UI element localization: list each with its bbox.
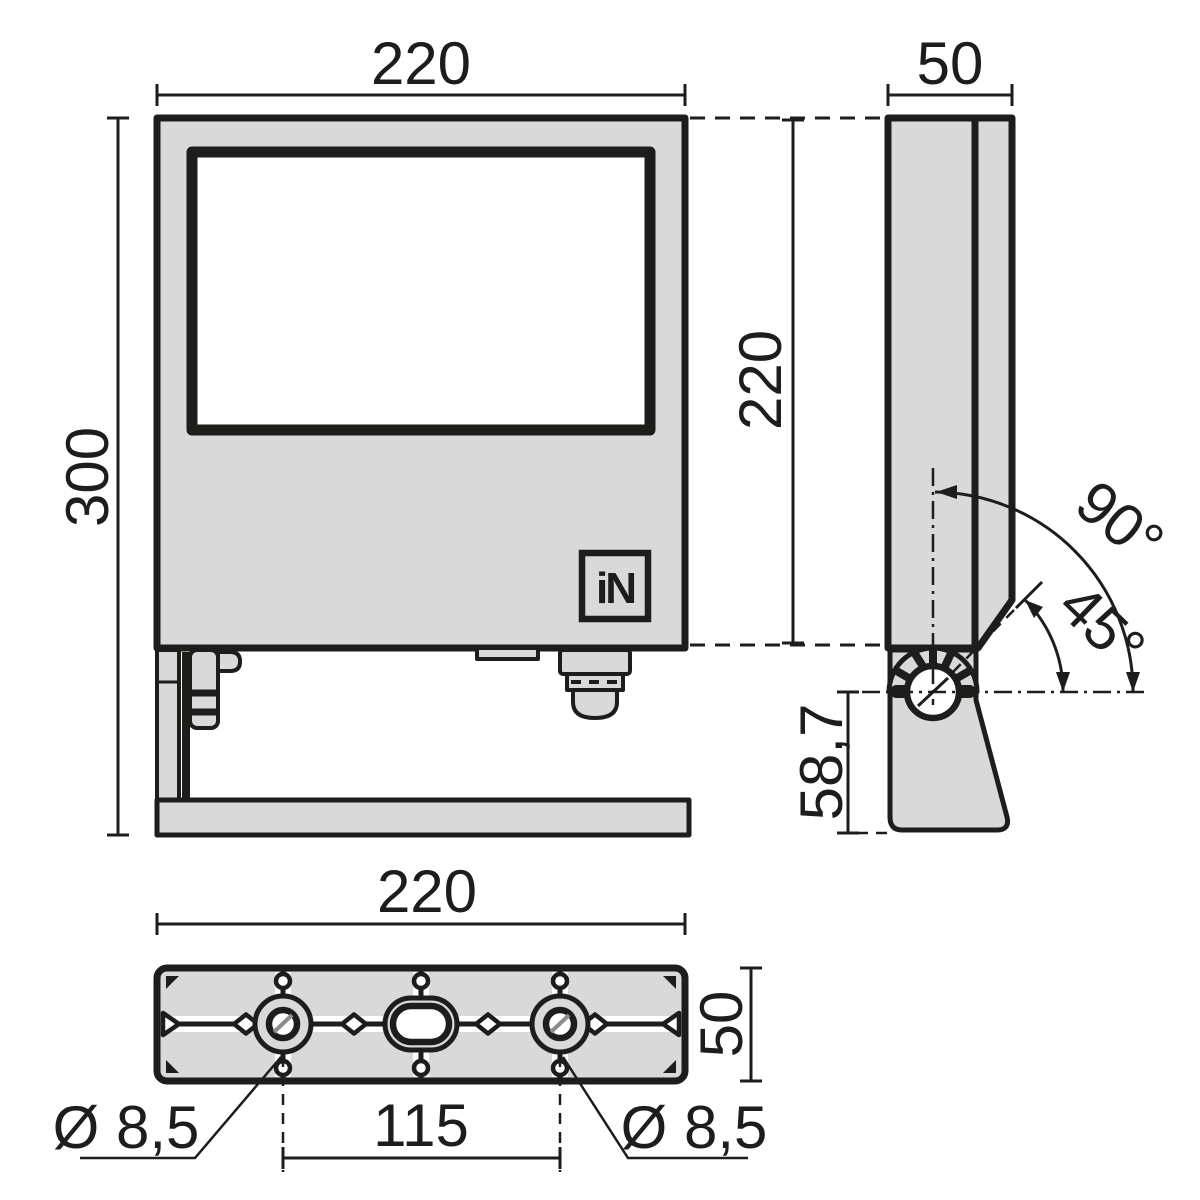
mounting-hole-right bbox=[532, 996, 588, 1052]
cable-gland bbox=[560, 650, 630, 718]
dim-value: 50 bbox=[688, 991, 755, 1058]
relief bbox=[414, 974, 428, 988]
dim-pivot-offset: 58,7 bbox=[788, 692, 890, 833]
dim-value: 90° bbox=[1064, 467, 1177, 576]
bottom-view bbox=[157, 968, 685, 1081]
label-value: Ø 8,5 bbox=[621, 1094, 768, 1161]
dim-housing-height: 220 bbox=[727, 120, 804, 643]
bracket-pivot-piece bbox=[190, 650, 218, 728]
dim-value: 300 bbox=[54, 427, 121, 527]
dim-side-depth: 50 bbox=[888, 30, 1012, 106]
label-value: Ø 8,5 bbox=[53, 1094, 200, 1161]
dim-front-height: 300 bbox=[54, 118, 129, 835]
center-slot bbox=[385, 998, 457, 1050]
mounting-hole-left bbox=[255, 996, 311, 1052]
floodlight-dimension-drawing: iN 220 bbox=[0, 0, 1200, 1200]
relief bbox=[553, 974, 567, 988]
base-plate bbox=[157, 800, 689, 835]
cable-gland-flange bbox=[560, 650, 630, 674]
side-housing bbox=[888, 118, 1012, 648]
technical-drawing-page: iN 220 bbox=[0, 0, 1200, 1200]
dim-value: 220 bbox=[727, 330, 794, 430]
dim-value: 220 bbox=[371, 30, 471, 97]
dim-value: 45° bbox=[1046, 571, 1158, 682]
dim-value: 58,7 bbox=[788, 704, 855, 821]
housing-step bbox=[477, 648, 538, 659]
brand-logo: iN bbox=[582, 553, 648, 619]
dim-value: 50 bbox=[917, 30, 984, 97]
front-view: iN bbox=[157, 118, 884, 835]
dim-bottom-width: 220 bbox=[157, 858, 685, 935]
bracket-pivot-tab bbox=[218, 652, 240, 671]
relief bbox=[276, 974, 290, 988]
slot-bore bbox=[393, 1006, 449, 1042]
arrowhead bbox=[1025, 600, 1043, 618]
bracket-arm-strip bbox=[157, 650, 179, 803]
dim-front-width: 220 bbox=[157, 30, 685, 106]
dim-value: 220 bbox=[377, 858, 477, 925]
dim-bottom-depth: 50 bbox=[688, 968, 762, 1081]
brand-logo-text: iN bbox=[596, 564, 634, 613]
arrowhead bbox=[1056, 672, 1070, 692]
mounting-bracket-arm bbox=[157, 650, 240, 803]
dim-value: 115 bbox=[373, 1092, 469, 1159]
cable-gland-dome bbox=[573, 690, 617, 718]
relief bbox=[414, 1061, 428, 1075]
arrowhead bbox=[1126, 672, 1140, 692]
front-lens bbox=[192, 152, 650, 430]
